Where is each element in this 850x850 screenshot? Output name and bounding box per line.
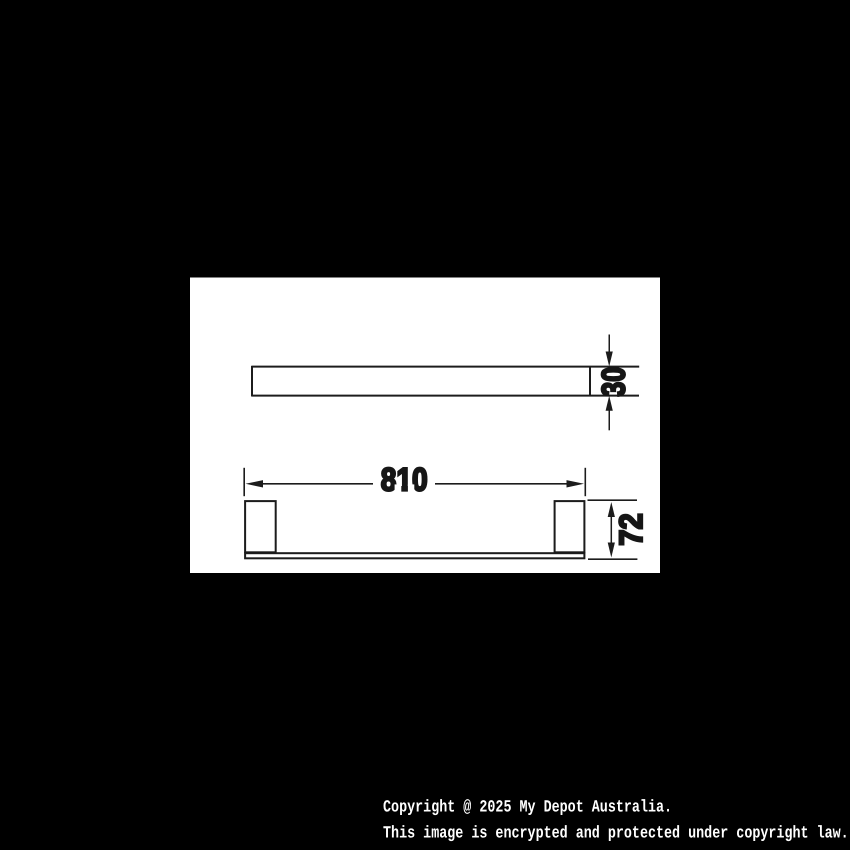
svg-text:Copyright @ 2025 My Depot Aust: Copyright @ 2025 My Depot Australia.	[383, 799, 672, 818]
svg-text:30: 30	[596, 367, 632, 397]
svg-text:810: 810	[381, 461, 428, 497]
svg-text:72: 72	[613, 513, 649, 546]
svg-text:This image is encrypted and pr: This image is encrypted and protected un…	[383, 825, 849, 844]
